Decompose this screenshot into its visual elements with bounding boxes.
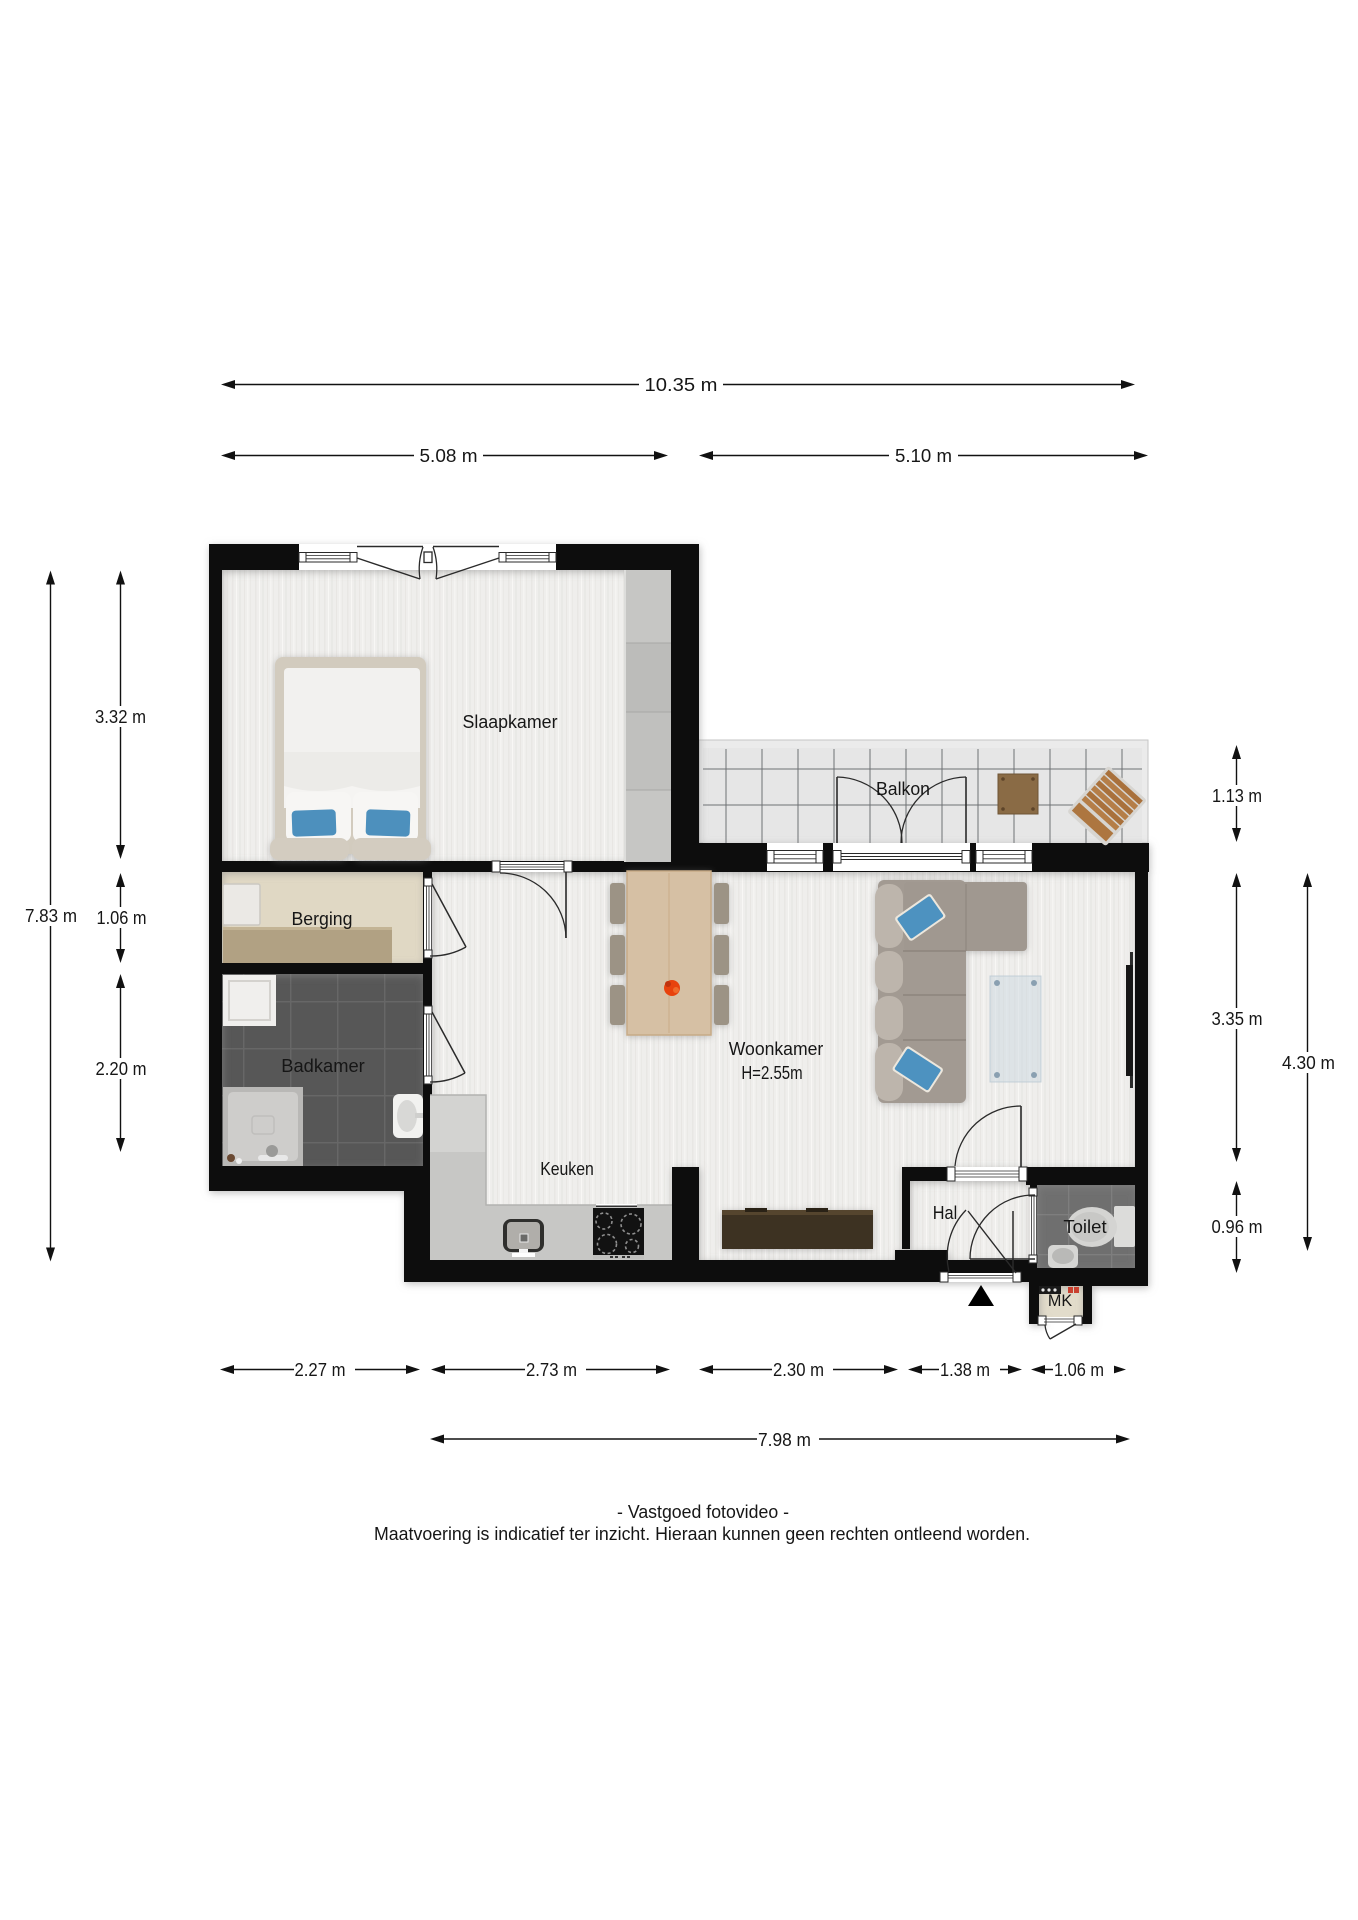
svg-text:4.30 m: 4.30 m <box>1282 1053 1335 1073</box>
svg-text:Keuken: Keuken <box>540 1159 594 1179</box>
svg-text:0.96 m: 0.96 m <box>1212 1217 1263 1237</box>
svg-text:Toilet: Toilet <box>1063 1217 1106 1237</box>
svg-text:Hal: Hal <box>933 1203 957 1223</box>
svg-text:Berging: Berging <box>292 909 353 929</box>
svg-text:2.20 m: 2.20 m <box>96 1059 147 1079</box>
svg-text:1.06 m: 1.06 m <box>1054 1360 1104 1380</box>
svg-text:2.27 m: 2.27 m <box>295 1360 346 1380</box>
svg-text:MK: MK <box>1048 1291 1073 1310</box>
svg-text:Slaapkamer: Slaapkamer <box>463 712 558 732</box>
svg-text:3.35 m: 3.35 m <box>1212 1009 1263 1029</box>
svg-text:Woonkamer: Woonkamer <box>729 1039 824 1059</box>
svg-text:7.98 m: 7.98 m <box>758 1430 811 1450</box>
svg-text:Maatvoering is indicatief ter: Maatvoering is indicatief ter inzicht. H… <box>374 1524 1030 1544</box>
svg-text:10.35 m: 10.35 m <box>645 375 718 395</box>
svg-text:Badkamer: Badkamer <box>281 1056 365 1076</box>
svg-text:1.38 m: 1.38 m <box>940 1360 990 1380</box>
svg-text:3.32 m: 3.32 m <box>95 707 146 727</box>
svg-text:7.83 m: 7.83 m <box>25 906 77 926</box>
svg-text:- Vastgoed fotovideo -: - Vastgoed fotovideo - <box>617 1502 789 1522</box>
svg-text:2.30 m: 2.30 m <box>773 1360 824 1380</box>
svg-text:5.10 m: 5.10 m <box>895 446 952 466</box>
svg-text:1.06 m: 1.06 m <box>97 908 147 928</box>
svg-text:H=2.55m: H=2.55m <box>741 1063 802 1083</box>
svg-text:Balkon: Balkon <box>876 779 930 799</box>
svg-text:2.73 m: 2.73 m <box>526 1360 577 1380</box>
svg-text:1.13 m: 1.13 m <box>1212 786 1262 806</box>
svg-text:5.08 m: 5.08 m <box>420 446 478 466</box>
